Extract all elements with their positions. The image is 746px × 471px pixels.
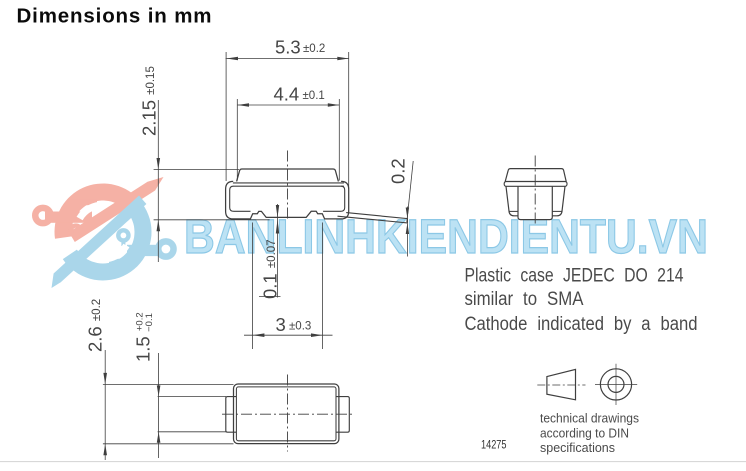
svg-text:technical drawings: technical drawings — [540, 411, 639, 426]
svg-text:specifications: specifications — [540, 440, 615, 455]
svg-text:5.3: 5.3 — [275, 37, 301, 58]
svg-text:Cathode indicated by a band: Cathode indicated by a band — [465, 314, 698, 335]
svg-text:according to DIN: according to DIN — [540, 425, 629, 440]
svg-text:0.2: 0.2 — [388, 158, 409, 184]
svg-text:14275: 14275 — [481, 439, 507, 451]
svg-text:±0.3: ±0.3 — [289, 321, 311, 333]
svg-text:1.5 +0.2−0.1: 1.5 +0.2−0.1 — [133, 312, 156, 362]
svg-text:4.4: 4.4 — [274, 84, 300, 105]
svg-text:BANLINHKIENDIENTU.VN: BANLINHKIENDIENTU.VN — [184, 209, 708, 263]
svg-text:Dimensions in mm: Dimensions in mm — [17, 5, 212, 28]
svg-text:Plastic case JEDEC DO 214: Plastic case JEDEC DO 214 — [465, 266, 684, 287]
svg-text:2.15 ±0.15: 2.15 ±0.15 — [139, 66, 160, 136]
svg-text:±0.2: ±0.2 — [303, 43, 325, 55]
svg-text:similar to SMA: similar to SMA — [465, 289, 584, 310]
svg-text:±0.1: ±0.1 — [303, 90, 325, 102]
svg-text:3: 3 — [276, 314, 286, 335]
svg-text:2.6 ±0.2: 2.6 ±0.2 — [85, 299, 106, 352]
